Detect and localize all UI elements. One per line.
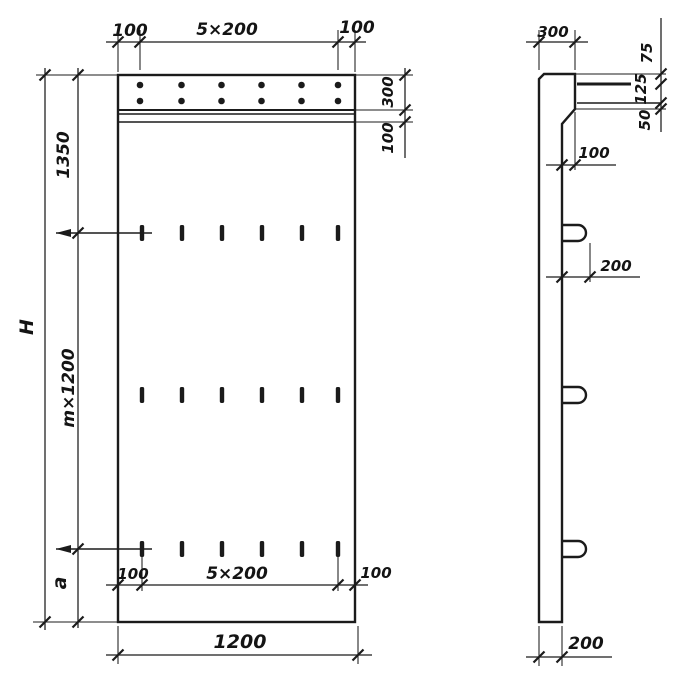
- anchor-dot: [137, 98, 144, 105]
- anchor-dot: [298, 98, 305, 105]
- slot-mark: [300, 226, 303, 241]
- anchor-dot: [258, 98, 265, 105]
- dim-ledge-lower: 50: [636, 110, 654, 131]
- slot-mark: [300, 388, 303, 403]
- anchor-dot: [137, 82, 144, 89]
- dim-top-right: 100: [339, 18, 375, 38]
- slot-mark: [336, 388, 339, 403]
- dim-module: m×1200: [59, 348, 79, 427]
- dim-top-zone: 1350: [54, 131, 74, 178]
- slot-mark: [260, 542, 263, 557]
- anchor-dot: [178, 98, 185, 105]
- anchor-dot: [335, 98, 342, 105]
- slot-mark: [260, 388, 263, 403]
- slot-mark: [220, 388, 223, 403]
- dim-loop: 200: [600, 257, 631, 275]
- anchor-dot: [218, 98, 225, 105]
- slot-mark: [336, 542, 339, 557]
- dim-step: 100: [578, 144, 609, 162]
- dim-cap-height: 300: [379, 76, 397, 107]
- dim-top-center: 5×200: [196, 20, 258, 40]
- anchor-dot: [218, 82, 225, 89]
- dim-ledge-middle: 125: [632, 73, 650, 104]
- anchor-dots: [137, 82, 342, 105]
- dim-cap-offset: 100: [379, 122, 397, 153]
- slot-mark: [300, 542, 303, 557]
- anchor-dot: [298, 82, 305, 89]
- slot-mark: [220, 542, 223, 557]
- dim-bottom-inner-right: 100: [360, 564, 391, 582]
- leader-arrow: [56, 545, 71, 553]
- dim-overall-width: 1200: [214, 631, 267, 653]
- side-view: 300 75 125 50 100 200 200: [526, 18, 666, 666]
- dim-ledge-upper: 75: [638, 43, 656, 64]
- slot-mark: [180, 542, 183, 557]
- anchor-dot: [335, 82, 342, 89]
- slot-mark: [140, 542, 143, 557]
- dim-bottom-inner-center: 5×200: [206, 564, 268, 584]
- slot-mark: [180, 226, 183, 241]
- anchor-dot: [258, 82, 265, 89]
- front-view: 100 5×200 100 H 1350 m×1200 a 300 100 10…: [16, 18, 413, 664]
- slot-mark: [180, 388, 183, 403]
- lifting-loop: [562, 387, 586, 403]
- slot-mark: [220, 226, 223, 241]
- dim-thickness: 200: [568, 634, 604, 654]
- technical-drawing: 100 5×200 100 H 1350 m×1200 a 300 100 10…: [0, 0, 700, 700]
- slot-mark: [140, 226, 143, 241]
- anchor-dot: [178, 82, 185, 89]
- lifting-loop: [562, 225, 586, 241]
- dim-bottom-zone: a: [49, 577, 71, 590]
- panel-outline: [118, 75, 355, 622]
- dim-overall-height: H: [16, 319, 38, 335]
- leader-arrow: [56, 229, 71, 237]
- lifting-loop: [562, 541, 586, 557]
- slot-mark: [260, 226, 263, 241]
- slot-mark: [336, 226, 339, 241]
- slot-marks: [140, 226, 339, 557]
- slot-mark: [140, 388, 143, 403]
